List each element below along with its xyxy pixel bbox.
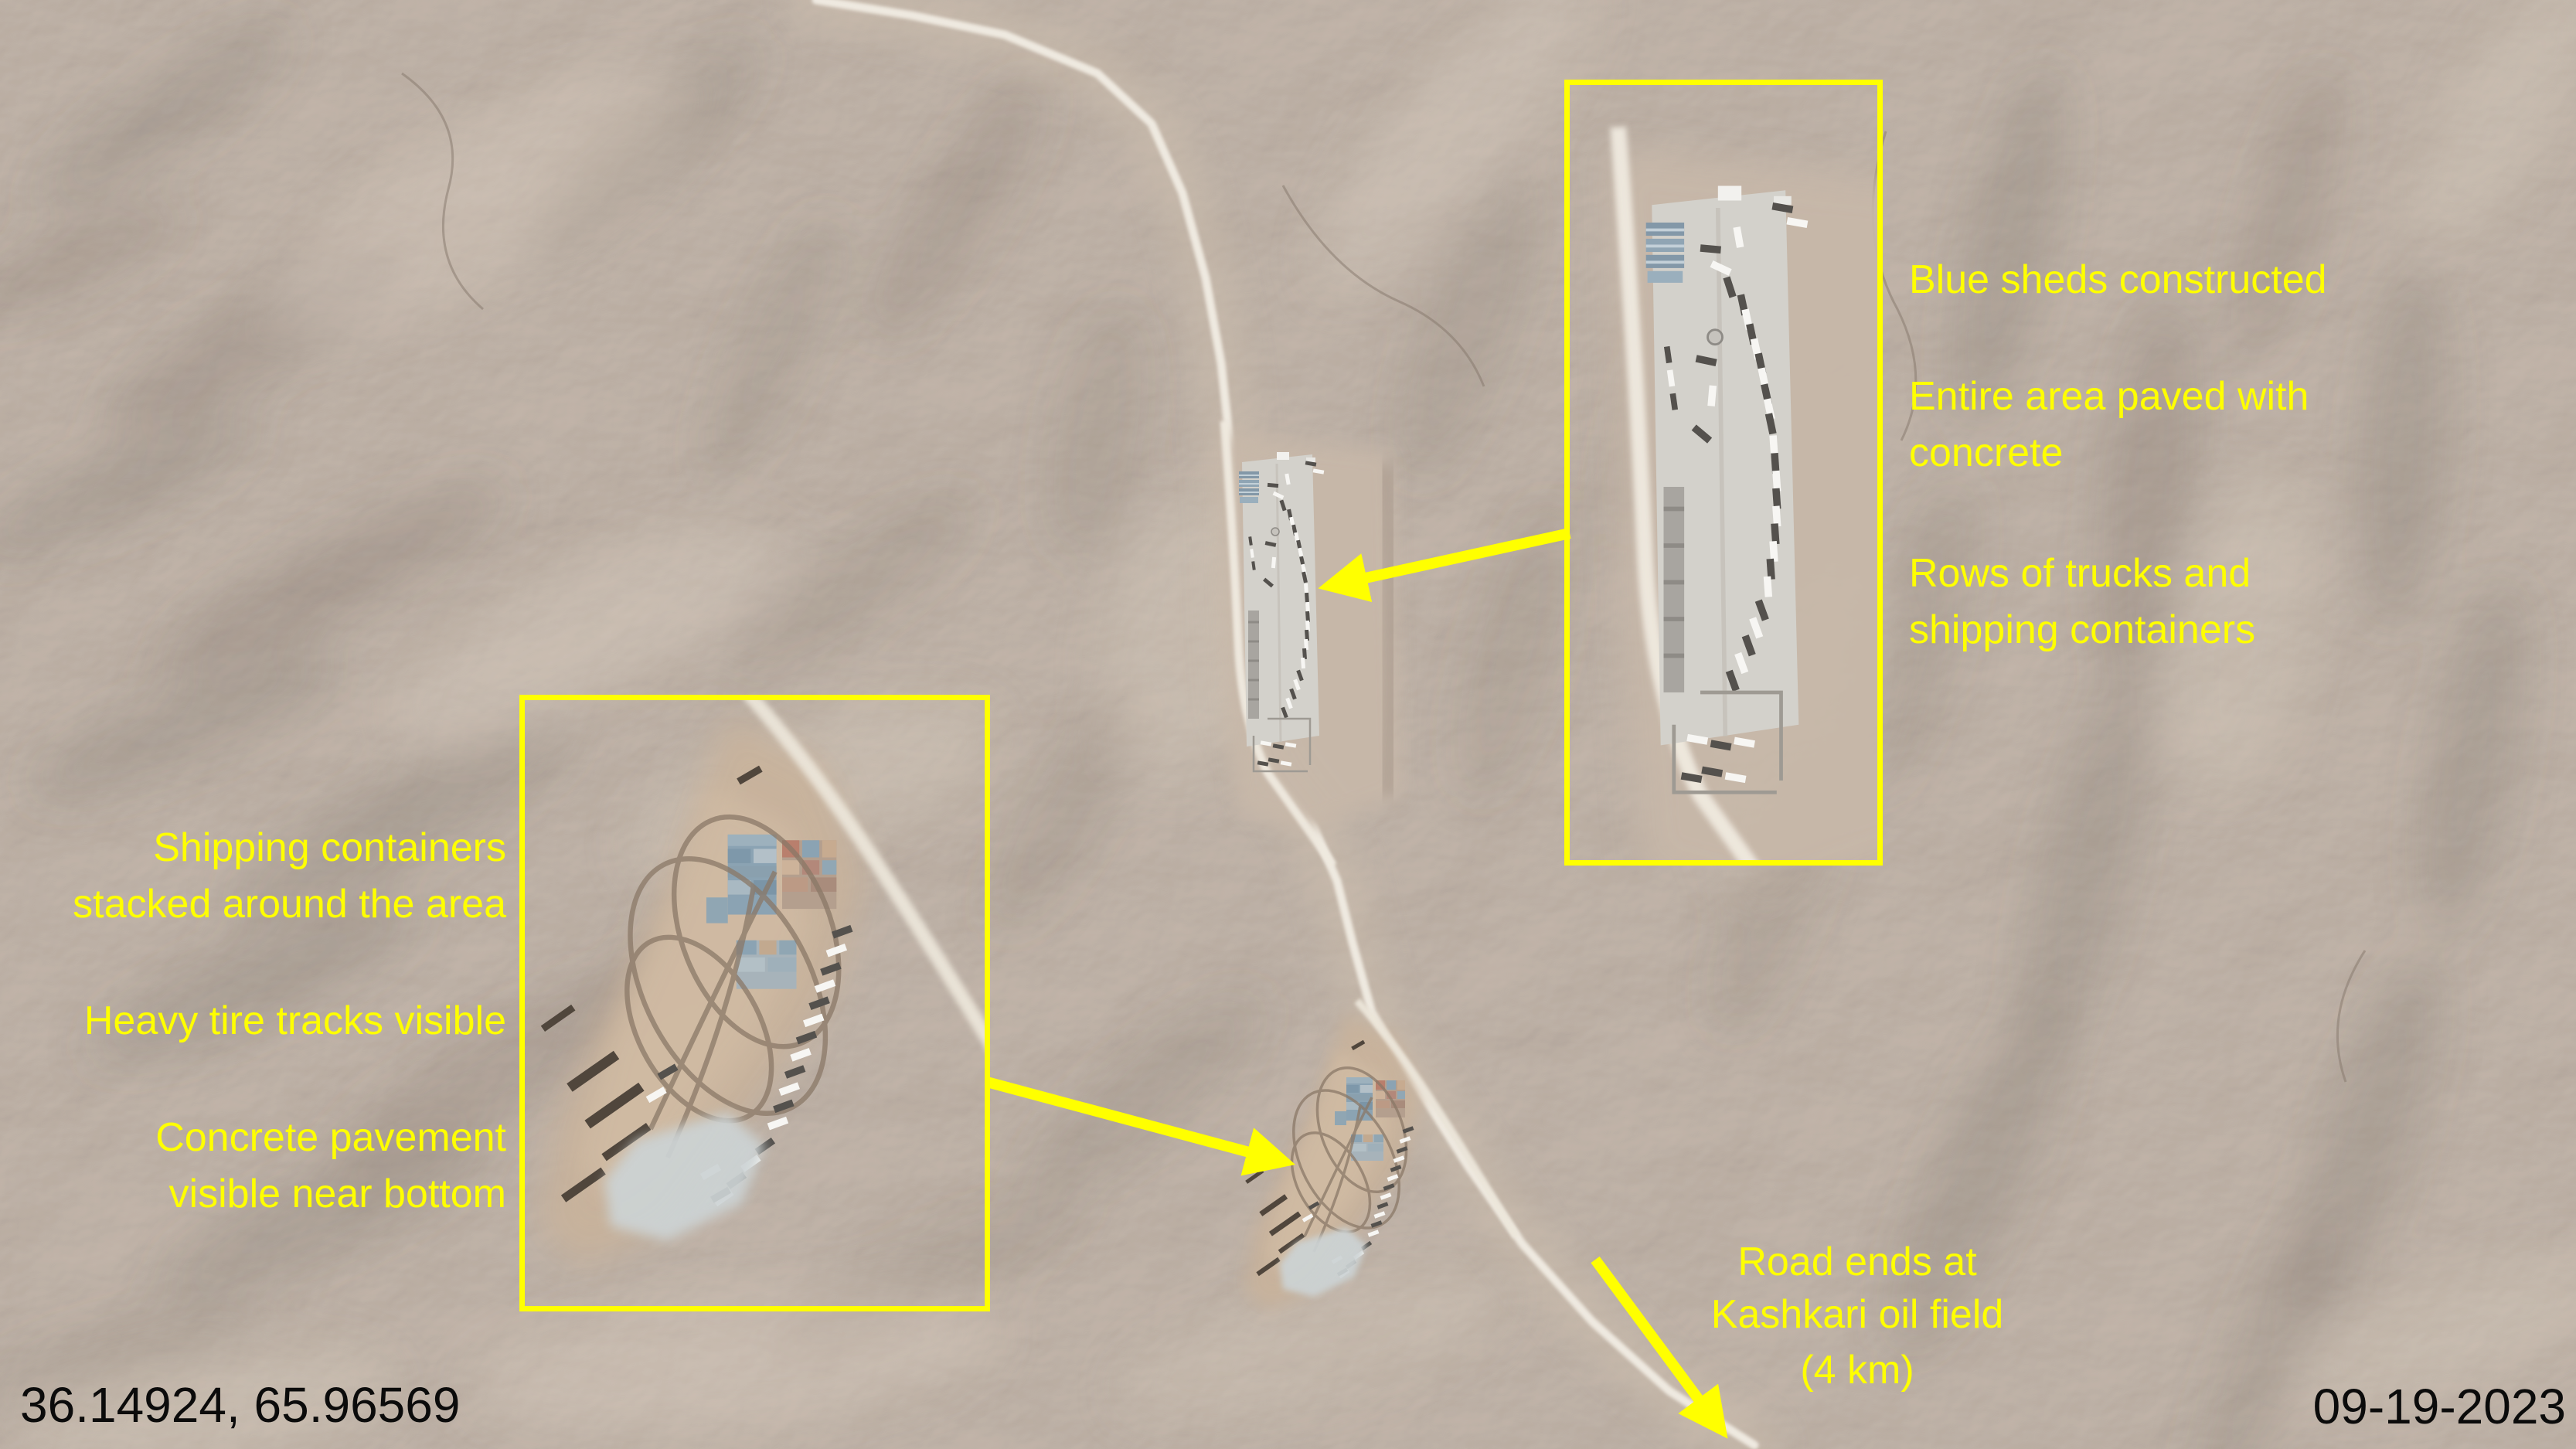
satellite-imagery	[0, 0, 2576, 1449]
note-paved-line1: Entire area paved with	[1909, 369, 2309, 425]
note-tire-tracks: Heavy tire tracks visible	[84, 993, 506, 1049]
note-road-line2: Kashkari oil field	[1625, 1287, 2089, 1342]
annotated-satellite-image: Blue sheds constructed Entire area paved…	[0, 0, 2576, 1449]
note-paved-line2: concrete	[1909, 425, 2063, 481]
inset-box-left	[519, 695, 990, 1311]
coordinates-label: 36.14924, 65.96569	[20, 1380, 460, 1430]
note-road-line3: (4 km)	[1625, 1343, 2089, 1397]
note-trucks-line2: shipping containers	[1909, 602, 2255, 658]
note-blue-sheds: Blue sheds constructed	[1909, 252, 2327, 308]
note-containers-line1: Shipping containers	[153, 820, 506, 876]
note-pavement-line2: visible near bottom	[169, 1166, 506, 1223]
note-trucks-line1: Rows of trucks and	[1909, 546, 2251, 602]
capture-date-label: 09-19-2023	[2313, 1382, 2566, 1431]
inset-box-right	[1564, 80, 1883, 866]
facility-concrete-pad-site	[1220, 421, 1400, 866]
note-containers-line2: stacked around the area	[73, 876, 506, 933]
note-road-line1: Road ends at	[1625, 1235, 2089, 1289]
note-pavement-line1: Concrete pavement	[155, 1110, 506, 1166]
